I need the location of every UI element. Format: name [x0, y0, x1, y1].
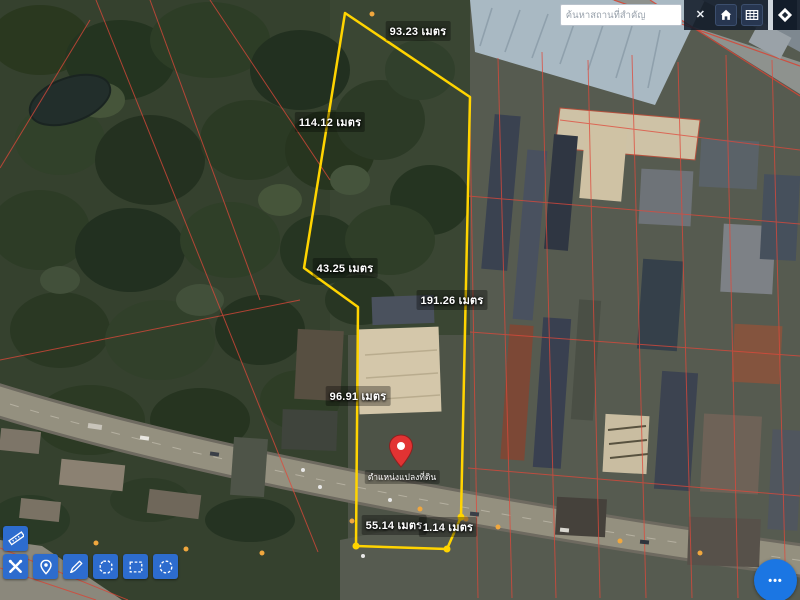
pencil-icon: [68, 559, 84, 575]
location-pin[interactable]: [388, 434, 414, 468]
home-button[interactable]: [715, 4, 737, 26]
draw-polygon-button[interactable]: [93, 554, 118, 579]
map-application: 93.23 เมตร 114.12 เมตร 43.25 เมตร 191.26…: [0, 0, 800, 600]
circle-icon: [158, 559, 174, 575]
home-icon: [719, 8, 733, 22]
measurement-label-top: 93.23 เมตร: [386, 21, 451, 41]
draw-line-button[interactable]: [63, 554, 88, 579]
tools-icon: [7, 558, 24, 575]
compass-button[interactable]: [773, 0, 797, 30]
measurement-label-left-lower: 43.25 เมตร: [313, 258, 378, 278]
topbar: ✕: [560, 0, 800, 30]
measurement-label-bottom: 55.14 เมตร: [362, 515, 427, 535]
tools-button[interactable]: [3, 554, 28, 579]
ruler-icon: [7, 530, 24, 547]
measurement-label-corner: 1.14 เมตร: [419, 517, 477, 537]
rectangle-icon: [128, 559, 144, 575]
satellite-map[interactable]: [0, 0, 800, 600]
measurement-label-stem: 96.91 เมตร: [326, 386, 391, 406]
pin-tool-icon: [38, 559, 54, 575]
parcel-vertex[interactable]: [444, 546, 451, 553]
pin-label: ตำแหน่งแปลงที่ดิน: [365, 470, 440, 484]
parcel-vertex[interactable]: [353, 543, 360, 550]
measure-ruler-button[interactable]: [3, 526, 28, 551]
compass-icon: [776, 6, 794, 24]
topbar-panel: ✕: [684, 0, 800, 30]
search-input[interactable]: [560, 4, 682, 26]
close-search-button[interactable]: ✕: [690, 8, 711, 23]
draw-circle-button[interactable]: [153, 554, 178, 579]
measurement-label-right: 191.26 เมตร: [417, 290, 488, 310]
polygon-icon: [98, 559, 114, 575]
drop-pin-button[interactable]: [33, 554, 58, 579]
grid-icon: [745, 8, 759, 22]
measurement-label-left: 114.12 เมตร: [295, 112, 365, 132]
more-actions-fab[interactable]: •••: [754, 559, 797, 600]
draw-rectangle-button[interactable]: [123, 554, 148, 579]
layers-grid-button[interactable]: [741, 4, 763, 26]
